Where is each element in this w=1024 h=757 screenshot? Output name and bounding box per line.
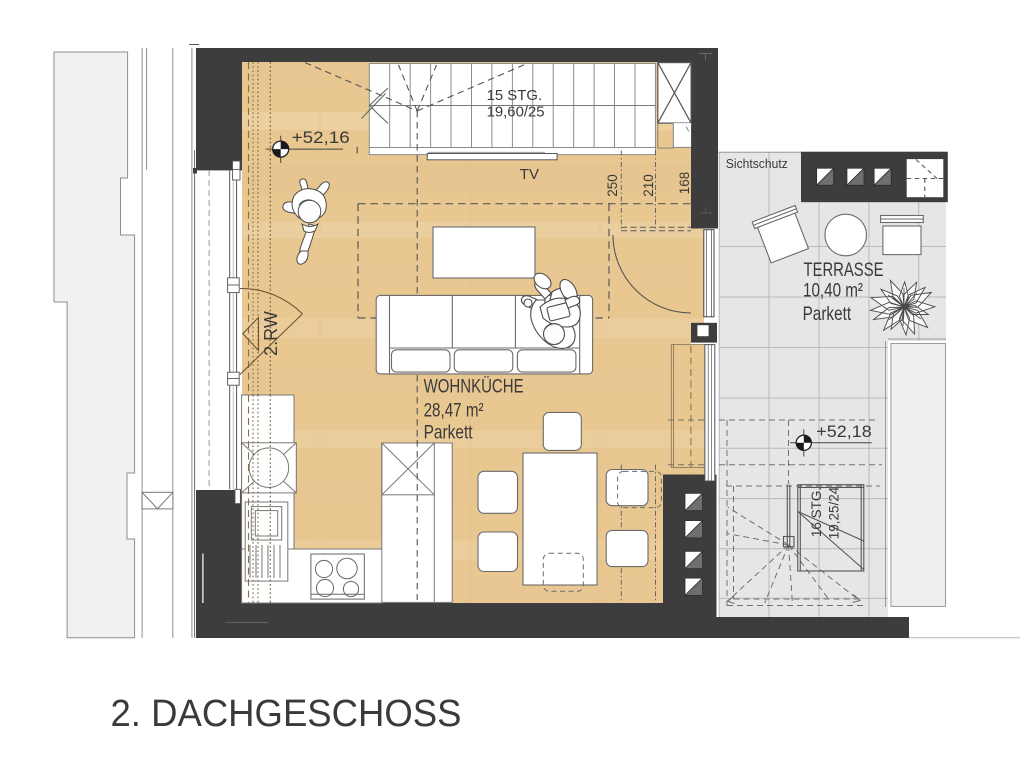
svg-text:10,40 m²: 10,40 m² — [803, 280, 863, 302]
svg-text:16 STG.: 16 STG. — [809, 487, 824, 537]
svg-text:TERRASSE: TERRASSE — [804, 259, 884, 281]
svg-text:+52,18: +52,18 — [816, 423, 871, 441]
svg-text:WOHNKÜCHE: WOHNKÜCHE — [424, 375, 524, 397]
svg-text:Parkett: Parkett — [803, 303, 852, 325]
svg-text:28,47 m²: 28,47 m² — [424, 400, 484, 422]
svg-text:+52,16: +52,16 — [292, 129, 350, 147]
svg-text:168: 168 — [677, 172, 692, 195]
svg-text:19,25/24: 19,25/24 — [827, 486, 842, 539]
svg-text:250: 250 — [605, 174, 620, 197]
svg-text:210: 210 — [641, 174, 656, 197]
svg-text:2. DACHGESCHOSS: 2. DACHGESCHOSS — [111, 693, 462, 735]
svg-text:Sichtschutz: Sichtschutz — [726, 156, 788, 171]
svg-text:2.RW: 2.RW — [261, 311, 281, 356]
svg-text:TV: TV — [520, 166, 539, 183]
svg-text:Parkett: Parkett — [424, 422, 473, 444]
svg-text:19,60/25: 19,60/25 — [487, 105, 545, 121]
svg-text:15 STG.: 15 STG. — [487, 88, 542, 104]
